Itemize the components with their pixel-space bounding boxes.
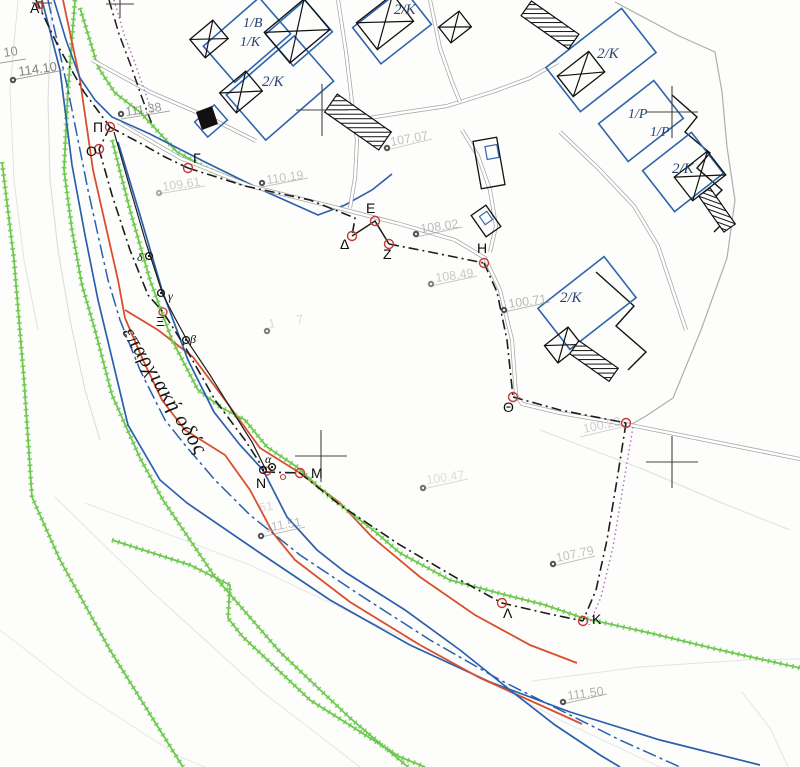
building-label-1P-b: 1/Ρ (650, 125, 670, 140)
building-label-1P-a: 1/Ρ (628, 107, 648, 122)
spotdot-100-71-hole (503, 309, 505, 311)
spotdot-111-38 (118, 111, 124, 117)
spotdot-108-02 (413, 231, 419, 237)
building-label-2K-c: 2/Κ (597, 46, 620, 62)
spotdot-114-10 (10, 77, 16, 83)
spotdot-109-61-hole (158, 192, 160, 194)
spotdot-107-79 (550, 561, 556, 567)
spotdot-108-49 (428, 281, 434, 287)
building-label-2K-b: 2/Κ (394, 2, 417, 18)
building-label-2K-e: 2/Κ (560, 290, 583, 306)
spotdot-114-10-hole (12, 79, 14, 81)
point-label-N: Ν (256, 475, 266, 491)
map-canvas: 10114.10111.38109.61110.19107.07108.0210… (0, 0, 800, 767)
point-label-alpha: α (265, 452, 272, 466)
node-donut-alpha-center (271, 466, 273, 468)
elev-label-51-fragment: 51 (258, 499, 274, 515)
point-label-Xi: Ξ (156, 314, 164, 329)
building-label-2K-d: 2/Κ (672, 161, 695, 177)
point-label-P: Π (93, 119, 103, 135)
node-donut-N-center (262, 469, 264, 471)
spotdot-111-51 (258, 533, 264, 539)
node-donut-gamma-center (160, 292, 162, 294)
spotdot-108-02-hole (415, 233, 417, 235)
point-label-H: Η (477, 240, 487, 256)
point-label-Z: Ζ (383, 246, 392, 262)
spotdot-107-79-hole (552, 563, 554, 565)
point-label-Th: Θ (503, 399, 514, 415)
spotdot-107-07 (384, 145, 390, 151)
spotdot-center-2-hole (422, 487, 424, 489)
point-label-K: Κ (592, 611, 602, 627)
point-label-gamma: γ (168, 289, 173, 303)
point-label-beta: β (189, 332, 196, 346)
node-donut-delta-center (148, 255, 150, 257)
building-label-1B: 1/Β (243, 16, 263, 31)
building-label-2K-a: 2/Κ (262, 74, 285, 90)
spotdot-111-50-hole (562, 701, 564, 703)
survey-map: 10114.10111.38109.61110.19107.07108.0210… (0, 0, 800, 767)
point-label-O: Ο (86, 143, 97, 159)
point-label-G: Γ (193, 150, 201, 166)
spotdot-110-19 (259, 180, 265, 186)
spotdot-107-07-hole (386, 147, 388, 149)
point-label-A: Α (30, 0, 40, 16)
spotdot-111-50 (560, 699, 566, 705)
point-label-M: Μ (311, 465, 323, 481)
elev-label-10: 10 (2, 43, 18, 60)
point-label-E: Ε (366, 200, 375, 216)
building-label-1K: 1/Κ (240, 35, 261, 50)
spotdot-111-38-hole (120, 113, 122, 115)
point-label-delta: δ (137, 250, 143, 264)
spotdot-111-51-hole (260, 535, 262, 537)
spotdot-109-61 (156, 190, 162, 196)
spotdot-100-71 (501, 307, 507, 313)
spotdot-110-19-hole (261, 182, 263, 184)
spotdot-center-2 (420, 485, 426, 491)
point-label-D: Δ (340, 236, 349, 252)
point-label-L: Λ (503, 605, 513, 621)
spotdot-108-49-hole (430, 283, 432, 285)
spotdot-center-1-hole (266, 330, 268, 332)
node-donut-beta-center (185, 339, 187, 341)
